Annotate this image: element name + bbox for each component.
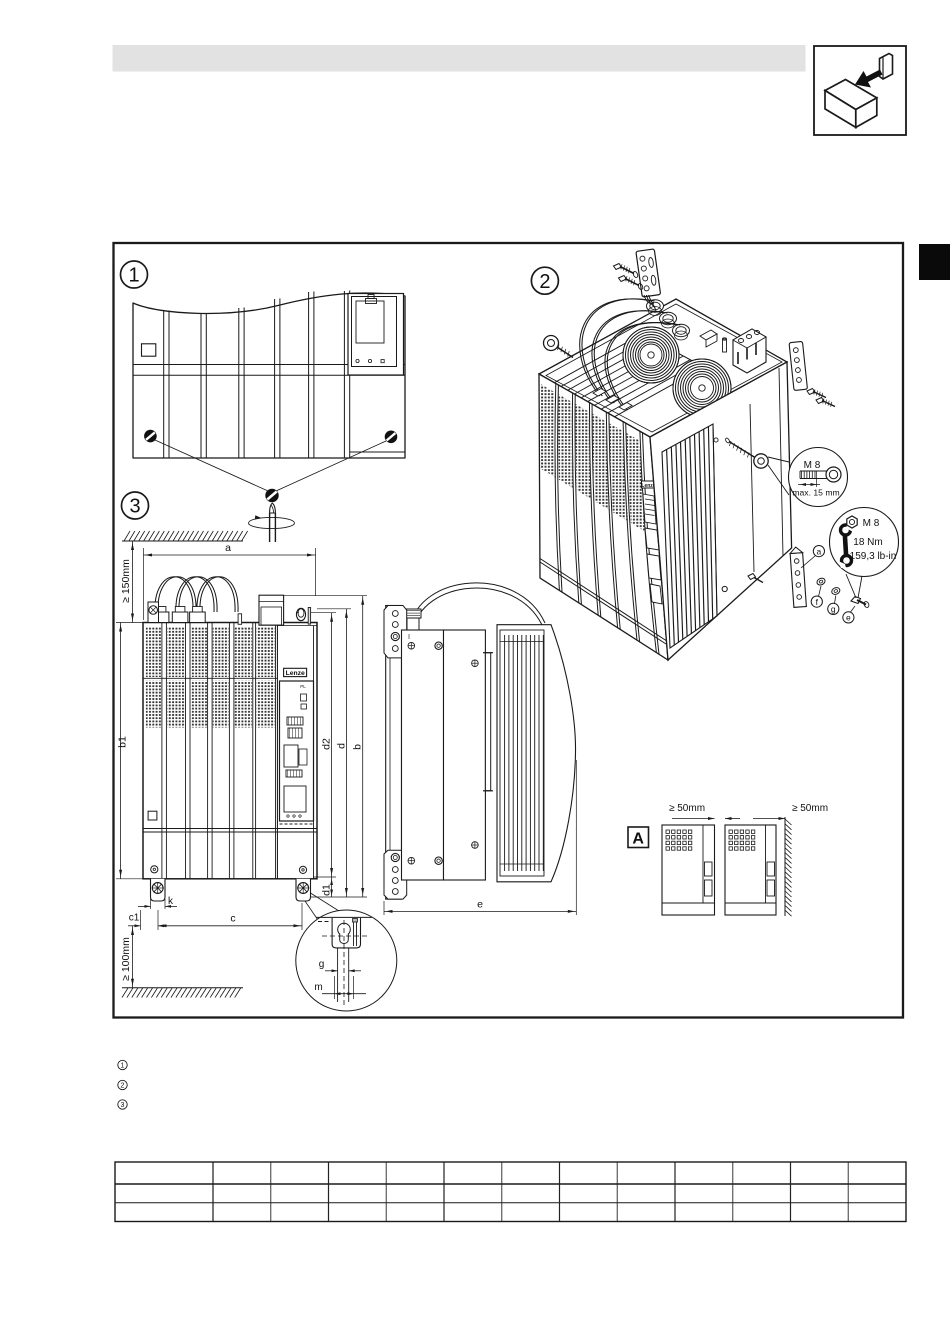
svg-text:d2: d2 bbox=[321, 738, 333, 750]
svg-text:≥ 50mm: ≥ 50mm bbox=[792, 803, 828, 814]
svg-text:c: c bbox=[230, 913, 235, 925]
svg-text:2: 2 bbox=[539, 271, 550, 293]
svg-text:g: g bbox=[319, 959, 325, 970]
svg-text:≥ 150mm: ≥ 150mm bbox=[120, 559, 132, 603]
svg-text:M 8: M 8 bbox=[804, 460, 821, 471]
svg-text:≥ 100mm: ≥ 100mm bbox=[120, 937, 132, 981]
svg-text:1: 1 bbox=[121, 1063, 125, 1070]
svg-text:d1: d1 bbox=[321, 884, 333, 896]
svg-text:a: a bbox=[225, 542, 231, 554]
svg-text:18 Nm: 18 Nm bbox=[853, 537, 882, 548]
svg-text:max. 15 mm: max. 15 mm bbox=[792, 488, 839, 498]
svg-text:e: e bbox=[477, 899, 483, 911]
svg-text:M 8: M 8 bbox=[863, 518, 880, 529]
svg-text:c1: c1 bbox=[129, 913, 140, 924]
svg-text:PL: PL bbox=[300, 684, 306, 689]
svg-text:159,3 lb-in: 159,3 lb-in bbox=[850, 551, 897, 562]
svg-text:Lenze: Lenze bbox=[286, 670, 305, 677]
svg-text:b1: b1 bbox=[117, 736, 129, 748]
svg-text:d: d bbox=[336, 743, 348, 749]
svg-text:e: e bbox=[846, 613, 851, 623]
svg-text:≥ 50mm: ≥ 50mm bbox=[669, 803, 705, 814]
svg-text:m: m bbox=[314, 982, 322, 993]
svg-text:A: A bbox=[632, 831, 644, 848]
svg-text:3: 3 bbox=[121, 1102, 125, 1109]
svg-text:2: 2 bbox=[121, 1083, 125, 1090]
svg-text:b: b bbox=[352, 744, 364, 750]
svg-text:a: a bbox=[817, 546, 822, 556]
svg-text:3: 3 bbox=[129, 496, 140, 518]
svg-text:1: 1 bbox=[128, 265, 139, 287]
svg-text:g: g bbox=[831, 604, 836, 614]
